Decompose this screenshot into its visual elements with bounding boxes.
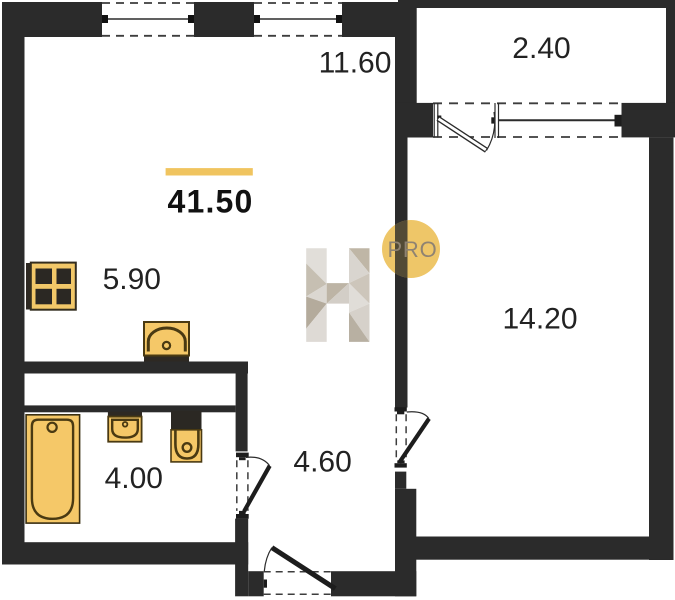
svg-text:5.90: 5.90: [103, 263, 161, 296]
svg-text:2.40: 2.40: [512, 32, 570, 65]
svg-text:11.60: 11.60: [319, 47, 392, 80]
svg-text:4.60: 4.60: [293, 446, 351, 479]
svg-text:PRO: PRO: [387, 237, 437, 262]
svg-text:14.20: 14.20: [502, 303, 577, 336]
svg-text:41.50: 41.50: [167, 184, 253, 220]
svg-text:4.00: 4.00: [105, 462, 163, 495]
